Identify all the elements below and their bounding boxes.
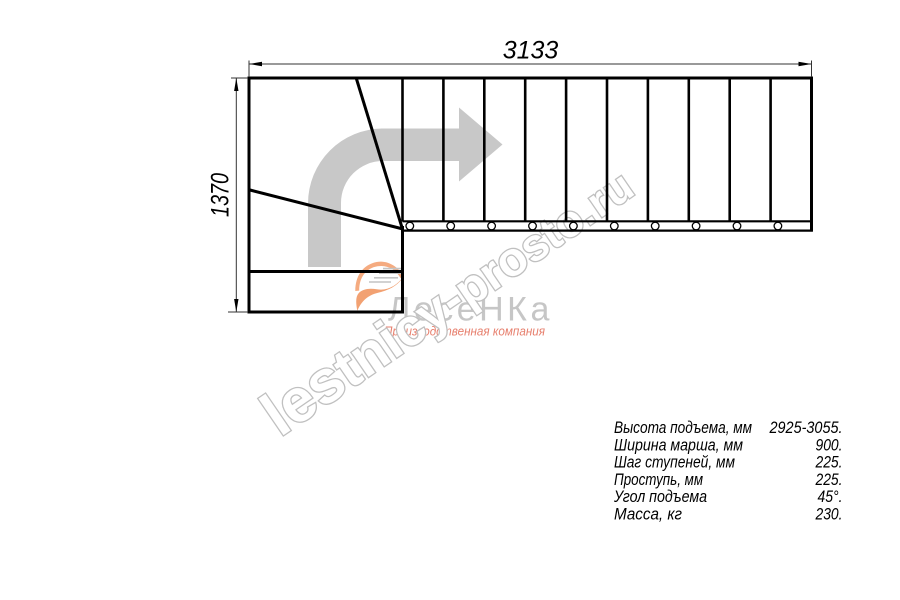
- svg-text:1370: 1370: [207, 173, 235, 217]
- svg-text:225.: 225.: [815, 470, 843, 489]
- svg-text:900.: 900.: [816, 435, 843, 454]
- svg-text:3133: 3133: [503, 37, 559, 65]
- svg-text:2925-3055.: 2925-3055.: [769, 418, 843, 437]
- svg-text:Шаг ступеней, мм: Шаг ступеней, мм: [614, 453, 735, 472]
- svg-text:lestnicy-prosto.ru: lestnicy-prosto.ru: [249, 147, 646, 448]
- svg-text:Масса, кг: Масса, кг: [614, 504, 682, 523]
- svg-text:Высота подъема, мм: Высота подъема, мм: [614, 418, 752, 437]
- svg-text:230.: 230.: [815, 504, 843, 523]
- svg-text:45°.: 45°.: [818, 487, 843, 506]
- svg-text:Ширина марша, мм: Ширина марша, мм: [614, 435, 743, 454]
- svg-text:Угол подъема: Угол подъема: [613, 487, 707, 506]
- svg-text:225.: 225.: [815, 453, 843, 472]
- svg-text:Проступь, мм: Проступь, мм: [614, 470, 703, 489]
